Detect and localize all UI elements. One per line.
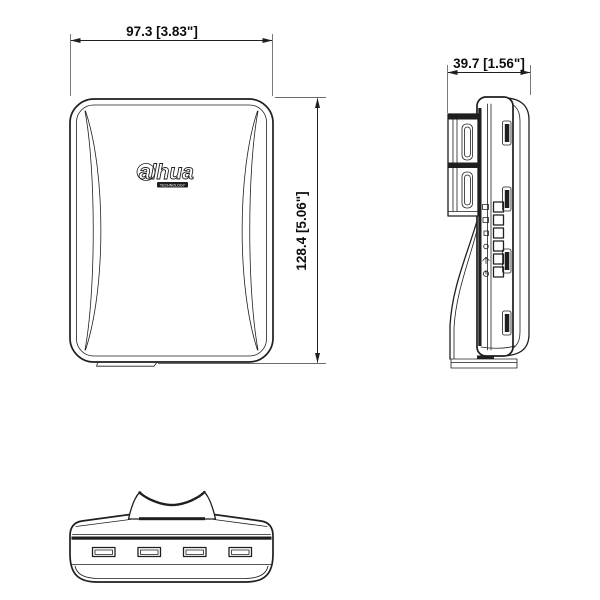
outer-outline	[70, 99, 273, 362]
port-slots	[93, 548, 252, 557]
dimension-width: 97.3 [3.83"]	[71, 24, 273, 96]
base-dark-segment	[477, 356, 494, 360]
front-view: alhua TECHNOLOGY	[70, 99, 273, 366]
vent-slot-inner	[505, 124, 510, 142]
bracket-band	[448, 163, 478, 169]
port-slot-inner	[232, 550, 250, 555]
depth-dimension-label: 39.7 [1.56"]	[453, 56, 525, 71]
mount-bracket	[448, 114, 478, 216]
base-plate-outline	[451, 359, 517, 368]
clamp-base-band	[139, 517, 205, 520]
bottom-view	[70, 492, 273, 583]
pole-clamp	[129, 492, 216, 521]
arrowhead-top	[315, 98, 320, 108]
vent-slot-inner	[505, 190, 510, 208]
port-slot-inner	[95, 550, 113, 555]
port-slot	[184, 548, 207, 557]
height-dimension-label: 128.4 [5.06"]	[294, 191, 309, 270]
port-slot	[93, 548, 116, 557]
logo-subtext: TECHNOLOGY	[160, 183, 186, 187]
vent-slot-inner	[505, 314, 510, 332]
port-slot-inner	[141, 550, 159, 555]
side-view	[448, 97, 529, 368]
bottom-inner-line	[75, 566, 268, 579]
port-slot-inner	[186, 550, 204, 555]
port-slot	[229, 548, 252, 557]
seam-band	[72, 537, 272, 540]
dahua-logo: alhua TECHNOLOGY	[137, 161, 194, 188]
bracket-arm-inner	[454, 230, 477, 359]
width-dimension-label: 97.3 [3.83"]	[126, 24, 198, 39]
vent-slot-inner	[505, 252, 510, 270]
arrowhead-left	[71, 38, 81, 43]
port-slot	[138, 548, 161, 557]
technical-drawing: 97.3 [3.83"] 128.4 [5.06"] 39.7 [1.56"] …	[0, 0, 600, 600]
bracket-band	[448, 114, 478, 120]
outer-outline	[70, 515, 273, 583]
arrowhead-right	[263, 38, 273, 43]
arrowhead-bottom	[315, 353, 320, 363]
base-plate	[451, 356, 517, 369]
